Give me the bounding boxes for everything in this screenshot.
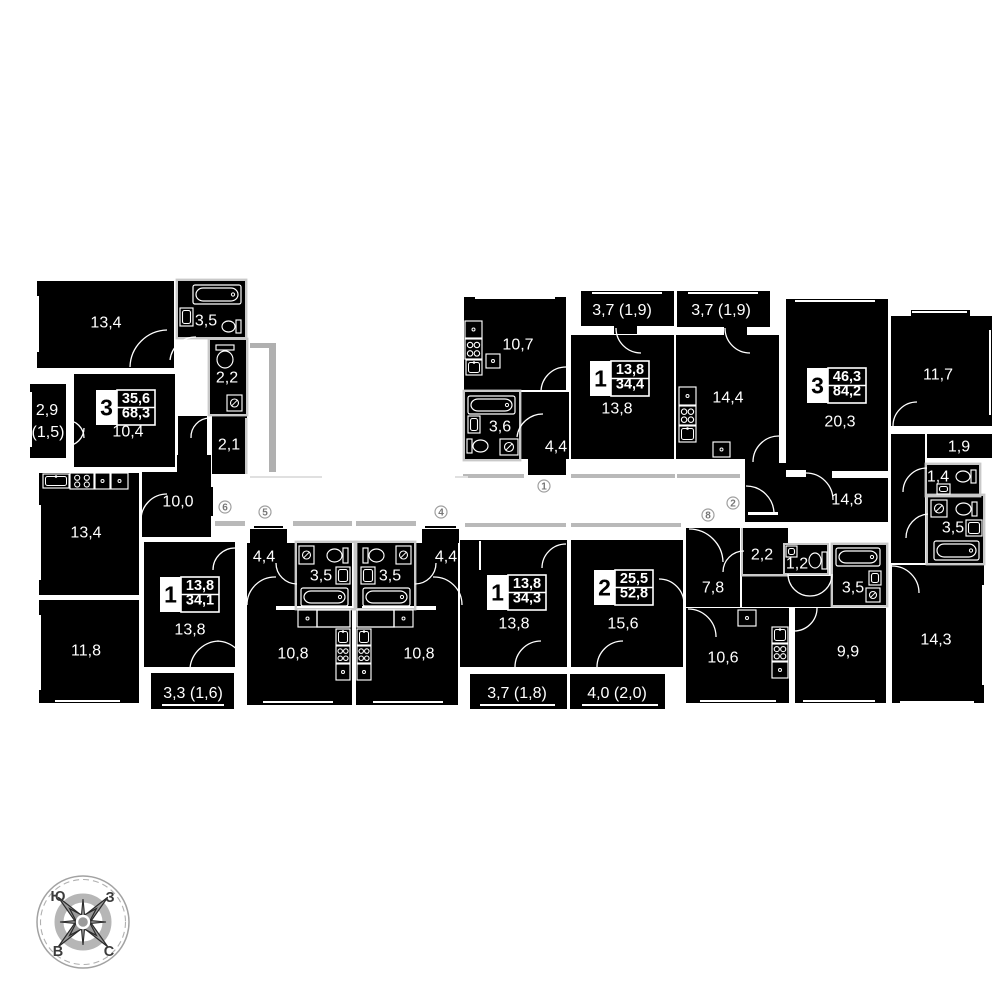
svg-text:6: 6 bbox=[222, 503, 228, 514]
svg-text:1: 1 bbox=[164, 582, 177, 608]
svg-text:1: 1 bbox=[491, 580, 504, 606]
svg-text:34,4: 34,4 bbox=[616, 377, 644, 393]
svg-text:3,7 (1,9): 3,7 (1,9) bbox=[592, 302, 652, 319]
svg-text:11,7: 11,7 bbox=[923, 367, 953, 384]
svg-text:2,9: 2,9 bbox=[36, 402, 58, 419]
svg-text:14,8: 14,8 bbox=[831, 492, 862, 509]
svg-text:2: 2 bbox=[730, 499, 736, 510]
svg-text:3: 3 bbox=[100, 395, 113, 421]
svg-text:3,5: 3,5 bbox=[310, 568, 332, 585]
svg-text:4,0 (2,0): 4,0 (2,0) bbox=[587, 685, 647, 702]
svg-text:3,5: 3,5 bbox=[942, 520, 964, 537]
svg-text:2: 2 bbox=[598, 575, 611, 601]
svg-text:34,3: 34,3 bbox=[513, 591, 541, 607]
svg-text:10,0: 10,0 bbox=[162, 494, 193, 511]
svg-text:2,1: 2,1 bbox=[218, 437, 240, 454]
svg-text:10,7: 10,7 bbox=[502, 337, 533, 354]
svg-text:1,2: 1,2 bbox=[786, 556, 808, 573]
svg-text:4: 4 bbox=[438, 508, 444, 519]
svg-text:3,5: 3,5 bbox=[379, 568, 401, 585]
svg-text:10,8: 10,8 bbox=[403, 646, 434, 663]
svg-text:3,7 (1,8): 3,7 (1,8) bbox=[487, 685, 547, 702]
svg-text:84,2: 84,2 bbox=[833, 384, 861, 400]
svg-text:Ю: Ю bbox=[51, 889, 66, 905]
svg-text:10,6: 10,6 bbox=[707, 650, 738, 667]
svg-text:11,8: 11,8 bbox=[71, 643, 101, 660]
svg-text:3,7 (1,9): 3,7 (1,9) bbox=[691, 302, 751, 319]
svg-text:3,5: 3,5 bbox=[195, 313, 217, 330]
svg-text:1,4: 1,4 bbox=[927, 469, 949, 486]
svg-text:3,3 (1,6): 3,3 (1,6) bbox=[163, 685, 223, 702]
svg-text:3,5: 3,5 bbox=[842, 580, 864, 597]
svg-text:З: З bbox=[105, 890, 114, 906]
svg-text:4,4: 4,4 bbox=[253, 549, 275, 566]
svg-text:2,2: 2,2 bbox=[216, 370, 238, 387]
svg-text:4,4: 4,4 bbox=[545, 439, 567, 456]
svg-text:13,8: 13,8 bbox=[601, 401, 632, 418]
svg-text:С: С bbox=[104, 944, 115, 960]
svg-text:10,8: 10,8 bbox=[277, 646, 308, 663]
svg-text:8: 8 bbox=[705, 511, 711, 522]
svg-text:7,8: 7,8 bbox=[702, 580, 724, 597]
svg-text:2,2: 2,2 bbox=[751, 547, 773, 564]
svg-text:9,9: 9,9 bbox=[837, 644, 859, 661]
svg-text:15,6: 15,6 bbox=[607, 616, 638, 633]
svg-text:68,3: 68,3 bbox=[122, 406, 150, 422]
svg-text:4,4: 4,4 bbox=[435, 549, 457, 566]
svg-text:13,4: 13,4 bbox=[70, 525, 101, 542]
svg-text:52,8: 52,8 bbox=[620, 586, 648, 602]
svg-text:10,4: 10,4 bbox=[112, 424, 143, 441]
svg-text:В: В bbox=[53, 944, 63, 960]
svg-text:20,3: 20,3 bbox=[824, 414, 855, 431]
svg-text:3,6: 3,6 bbox=[489, 419, 511, 436]
svg-text:5: 5 bbox=[262, 508, 268, 519]
svg-text:34,1: 34,1 bbox=[186, 593, 214, 609]
svg-text:13,8: 13,8 bbox=[498, 616, 529, 633]
svg-text:1: 1 bbox=[594, 366, 607, 392]
svg-text:14,3: 14,3 bbox=[920, 632, 951, 649]
svg-text:1: 1 bbox=[541, 482, 547, 493]
svg-text:3: 3 bbox=[811, 373, 824, 399]
svg-text:13,8: 13,8 bbox=[174, 622, 205, 639]
svg-text:1,9: 1,9 bbox=[948, 439, 970, 456]
svg-text:(1,5): (1,5) bbox=[32, 424, 65, 441]
svg-text:13,4: 13,4 bbox=[90, 315, 121, 332]
svg-text:14,4: 14,4 bbox=[712, 390, 743, 407]
